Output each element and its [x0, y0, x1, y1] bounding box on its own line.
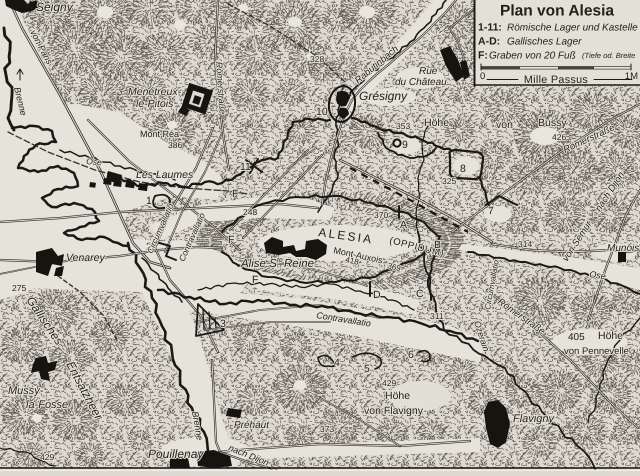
svg-text:3: 3 [220, 318, 226, 330]
svg-text:Höhe: Höhe [385, 390, 410, 402]
svg-text:4: 4 [334, 357, 340, 369]
svg-text:von: von [496, 119, 513, 131]
svg-text:1M: 1M [625, 71, 638, 82]
svg-text:F: F [228, 234, 234, 246]
svg-text:7: 7 [488, 205, 494, 217]
svg-text:10: 10 [316, 106, 328, 118]
svg-text:la-Fosse: la-Fosse [26, 399, 68, 411]
svg-text:370: 370 [374, 210, 388, 220]
svg-text:Mussy-: Mussy- [8, 385, 44, 397]
svg-text:F: F [252, 274, 258, 286]
svg-text:Seigny: Seigny [36, 0, 74, 14]
svg-text:D: D [373, 289, 381, 301]
svg-text:le-Pitois: le-Pitois [136, 98, 174, 110]
svg-text:Munois: Munois [607, 243, 639, 254]
svg-text:Mille Passus: Mille Passus [524, 74, 589, 86]
svg-text:Flavigny: Flavigny [513, 413, 555, 425]
svg-text:(Tiefe od. Breite: (Tiefe od. Breite [582, 51, 635, 60]
svg-text:Mont Réa: Mont Réa [140, 129, 179, 139]
svg-text:275: 275 [12, 283, 26, 293]
svg-text:Plan von Alesia: Plan von Alesia [500, 3, 614, 20]
svg-text:Gallisches Lager: Gallisches Lager [507, 37, 582, 48]
svg-text:314: 314 [518, 239, 532, 249]
svg-text:Reine: Reine [284, 258, 314, 270]
svg-text:C: C [416, 288, 424, 300]
svg-text:248: 248 [243, 207, 257, 217]
svg-text:325: 325 [442, 176, 456, 186]
svg-text:386: 386 [168, 140, 182, 150]
svg-text:te: te [277, 257, 283, 264]
svg-text:311: 311 [430, 311, 444, 321]
svg-text:405: 405 [568, 332, 585, 343]
svg-text:Venarey: Venarey [66, 252, 105, 264]
svg-text:Rue: Rue [419, 66, 438, 77]
svg-text:1: 1 [146, 195, 152, 207]
svg-text:6: 6 [408, 349, 414, 361]
svg-text:353: 353 [396, 121, 410, 131]
svg-text:8: 8 [460, 163, 466, 175]
svg-text:F: F [232, 188, 238, 200]
svg-text:11: 11 [240, 161, 251, 173]
svg-text:1-11:: 1-11: [478, 22, 502, 34]
svg-text:B: B [434, 239, 441, 251]
svg-text:Römische Lager und Kastelle: Römische Lager und Kastelle [507, 23, 638, 34]
svg-text:Les Laumes: Les Laumes [136, 169, 194, 181]
svg-text:Höhe: Höhe [598, 330, 623, 342]
svg-text:Menétreux-: Menétreux- [128, 86, 182, 98]
svg-text:373: 373 [320, 424, 334, 434]
svg-text:du Château: du Château [395, 77, 447, 88]
svg-text:9: 9 [402, 139, 408, 151]
svg-text:5: 5 [364, 363, 370, 375]
svg-text:von Pennevelle: von Pennevelle [564, 346, 629, 357]
svg-text:Pouillenay: Pouillenay [148, 447, 204, 461]
svg-text:429: 429 [40, 452, 54, 462]
svg-text:A-D:: A-D: [478, 36, 500, 48]
svg-text:Grésigny: Grésigny [359, 89, 408, 103]
svg-text:0: 0 [480, 71, 485, 82]
svg-text:Alise S: Alise S [240, 258, 277, 270]
svg-text:328: 328 [310, 54, 324, 64]
svg-text:Höhe: Höhe [424, 117, 449, 129]
svg-text:429: 429 [382, 378, 396, 388]
svg-text:Ose: Ose [86, 156, 103, 167]
svg-text:Bussy: Bussy [538, 117, 567, 129]
svg-text:Graben von 20 Fuß: Graben von 20 Fuß [489, 51, 576, 62]
svg-text:426: 426 [552, 132, 566, 142]
svg-text:Préhaut: Préhaut [234, 420, 270, 431]
svg-text:A: A [400, 219, 407, 231]
svg-text:F:: F: [478, 50, 488, 62]
svg-text:von Flavigny: von Flavigny [364, 405, 424, 417]
